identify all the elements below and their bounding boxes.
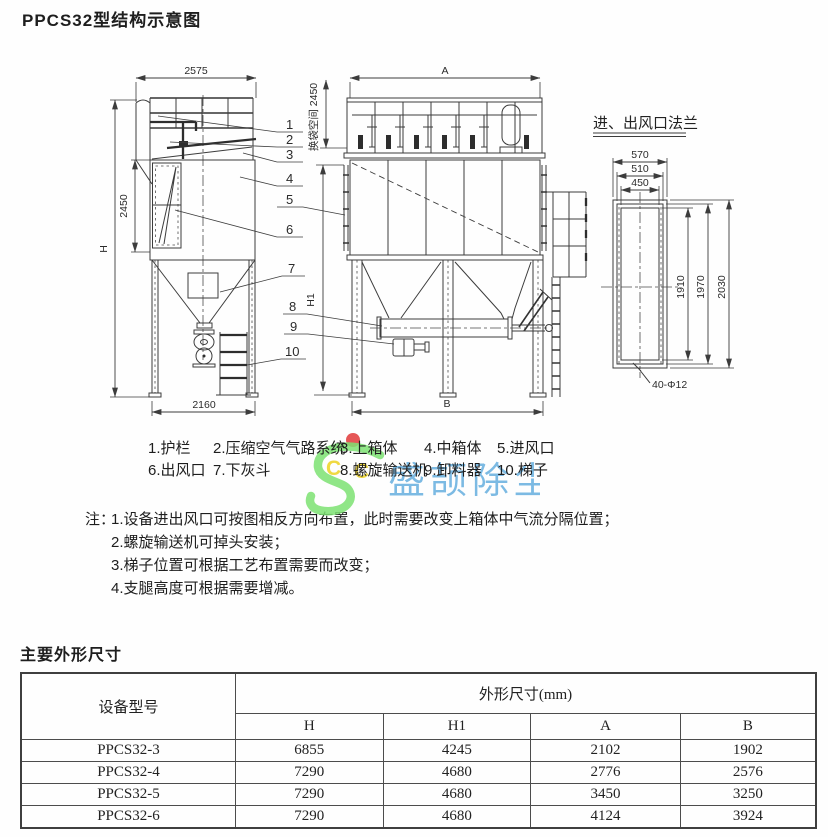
callout-4: 4 — [286, 171, 293, 186]
dim-bag-space: 换袋空间 2450 — [307, 83, 320, 151]
page-title: PPCS32型结构示意图 — [22, 6, 201, 31]
document-page: PPCS32型结构示意图 — [0, 0, 828, 837]
column-header-model: 设备型号 — [21, 673, 235, 740]
model-cell: PPCS32-6 — [21, 806, 235, 829]
callout-8: 8 — [289, 299, 296, 314]
dim-2575: 2575 — [184, 65, 208, 77]
part-item: 6.出风口 — [148, 459, 206, 480]
note-line: 3.梯子位置可根据工艺布置需要而改变； — [111, 554, 619, 577]
structure-diagram: 2575 H 2450 2160 — [0, 55, 828, 435]
value-cell: 6855 — [235, 740, 383, 762]
value-cell: 7290 — [235, 806, 383, 829]
callout-9: 9 — [290, 319, 297, 334]
left-view-dimensions: 2575 H 2450 2160 — [98, 65, 256, 416]
parts-legend-row-1: 1.护栏 2.压缩空气气路系统 3.上箱体 4.中箱体 5.进风口 — [0, 437, 828, 457]
note-line: 4.支腿高度可根据需要增减。 — [111, 577, 619, 600]
value-cell: 3924 — [680, 806, 816, 829]
table-row: PPCS32-6 7290 4680 4124 3924 — [21, 806, 816, 829]
column-header-H: H — [235, 714, 383, 740]
middle-view — [343, 98, 586, 397]
value-cell: 1902 — [680, 740, 816, 762]
dim-bolt-holes: 40-Φ12 — [652, 379, 687, 391]
callout-3: 3 — [286, 147, 293, 162]
table-row: PPCS32-5 7290 4680 3450 3250 — [21, 784, 816, 806]
dim-570: 570 — [631, 149, 649, 161]
value-cell: 4124 — [531, 806, 681, 829]
dim-450: 450 — [631, 177, 649, 189]
note-line: 2.螺旋输送机可掉头安装； — [111, 531, 619, 554]
pulse-valves — [358, 115, 529, 149]
dim-B: B — [443, 398, 450, 410]
value-cell: 3450 — [531, 784, 681, 806]
part-item: 3.上箱体 — [340, 437, 398, 458]
value-cell: 7290 — [235, 762, 383, 784]
column-header-H1: H1 — [383, 714, 531, 740]
callout-10: 10 — [285, 344, 299, 359]
column-header-B: B — [680, 714, 816, 740]
left-view — [136, 95, 258, 397]
part-item: 7.下灰斗 — [213, 459, 271, 480]
value-cell: 2576 — [680, 762, 816, 784]
part-item: 5.进风口 — [497, 437, 555, 458]
model-cell: PPCS32-4 — [21, 762, 235, 784]
value-cell: 3250 — [680, 784, 816, 806]
section-title: 主要外形尺寸 — [20, 641, 122, 665]
callout-1: 1 — [286, 117, 293, 132]
dim-510: 510 — [631, 163, 649, 175]
model-cell: PPCS32-3 — [21, 740, 235, 762]
table-row: PPCS32-4 7290 4680 2776 2576 — [21, 762, 816, 784]
value-cell: 4245 — [383, 740, 531, 762]
callout-5: 5 — [286, 192, 293, 207]
dim-H1: H1 — [305, 293, 317, 307]
flange-detail-view: 进、出风口法兰 570 510 450 1910 1970 — [593, 115, 734, 391]
value-cell: 7290 — [235, 784, 383, 806]
part-item: 10.梯子 — [497, 459, 548, 480]
technical-drawing: 2575 H 2450 2160 — [0, 55, 828, 435]
callout-2: 2 — [286, 132, 293, 147]
note-line: 注：1.设备进出风口可按图相反方向布置，此时需要改变上箱体中气流分隔位置； — [85, 508, 619, 531]
part-item: 1.护栏 — [148, 437, 191, 458]
value-cell: 4680 — [383, 762, 531, 784]
flange-title: 进、出风口法兰 — [593, 115, 698, 132]
value-cell: 2102 — [531, 740, 681, 762]
dim-2450-left: 2450 — [118, 194, 130, 218]
dim-H: H — [98, 245, 110, 253]
part-item: 9.卸料器 — [424, 459, 482, 480]
table-row: PPCS32-3 6855 4245 2102 1902 — [21, 740, 816, 762]
value-cell: 2776 — [531, 762, 681, 784]
part-item: 2.压缩空气气路系统 — [213, 437, 346, 458]
dim-1970: 1970 — [695, 275, 707, 299]
value-cell: 4680 — [383, 784, 531, 806]
column-header-group: 外形尺寸(mm) — [235, 673, 816, 714]
dim-1910: 1910 — [675, 275, 687, 299]
note-text: 1.设备进出风口可按图相反方向布置，此时需要改变上箱体中气流分隔位置； — [111, 511, 619, 528]
dim-2030: 2030 — [716, 275, 728, 299]
part-item: 4.中箱体 — [424, 437, 482, 458]
column-header-A: A — [531, 714, 681, 740]
model-cell: PPCS32-5 — [21, 784, 235, 806]
callout-7: 7 — [288, 261, 295, 276]
dimensions-table: 设备型号 外形尺寸(mm) H H1 A B PPCS32-3 6855 424… — [20, 672, 817, 829]
parts-legend-row-2: 6.出风口 7.下灰斗 8.螺旋输送机 9.卸料器 10.梯子 — [0, 459, 828, 479]
dim-2160: 2160 — [192, 399, 216, 411]
callout-6: 6 — [286, 222, 293, 237]
value-cell: 4680 — [383, 806, 531, 829]
notes-block: 注：1.设备进出风口可按图相反方向布置，此时需要改变上箱体中气流分隔位置； 2.… — [85, 508, 619, 600]
note-label: 注： — [85, 508, 111, 531]
dim-A: A — [441, 65, 448, 77]
middle-view-dimensions: A 换袋空间 2450 H1 B — [305, 65, 543, 416]
part-item: 8.螺旋输送机 — [340, 459, 428, 480]
